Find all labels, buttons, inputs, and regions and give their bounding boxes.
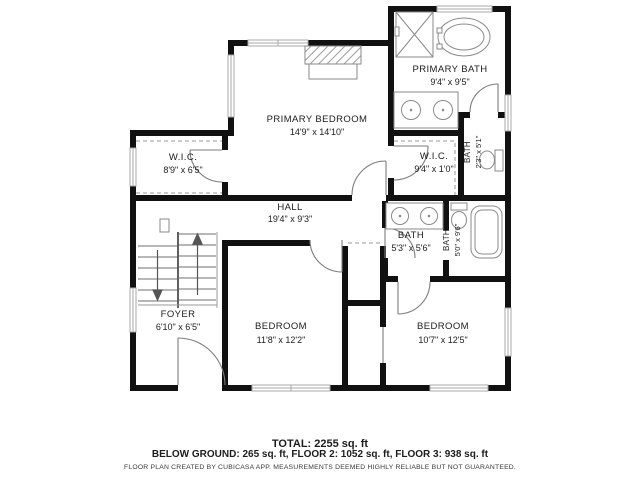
room-label-wic-left: W.I.C. 8'9" x 6'5" bbox=[163, 152, 202, 175]
floor-breakdown-text: BELOW GROUND: 265 sq. ft, FLOOR 2: 1052 … bbox=[152, 449, 489, 460]
room-label-wic-right: W.I.C. 9'4" x 1'0" bbox=[414, 151, 453, 174]
stairs bbox=[138, 219, 217, 308]
floor-plan-page: PRIMARY BATH 9'4" x 9'5" PRIMARY BEDROOM… bbox=[0, 0, 640, 480]
window bbox=[130, 288, 136, 332]
room-name: BATH bbox=[442, 229, 451, 251]
shower-icon bbox=[395, 12, 433, 57]
room-label-primary-bedroom: PRIMARY BEDROOM 14'9" x 14'10" bbox=[267, 114, 368, 137]
room-dims: 9'4" x 9'5" bbox=[430, 77, 469, 87]
room-name: BEDROOM bbox=[255, 321, 307, 332]
vanity-primary-bath bbox=[394, 92, 458, 128]
room-label-bedroom-right: BEDROOM 10'7" x 12'5" bbox=[417, 321, 469, 345]
floor-plan: PRIMARY BATH 9'4" x 9'5" PRIMARY BEDROOM… bbox=[0, 0, 640, 480]
door-front bbox=[178, 338, 225, 385]
wall bbox=[386, 195, 394, 201]
room-label-bath-small: BATH 2'3" x 5'1" bbox=[463, 135, 483, 168]
closet-door bbox=[380, 327, 386, 363]
bed-icon bbox=[305, 46, 361, 79]
window bbox=[430, 385, 488, 391]
vanity-middle-bath bbox=[386, 203, 443, 229]
wall bbox=[386, 276, 398, 282]
disclaimer-text: FLOOR PLAN CREATED BY CUBICASA APP. MEAS… bbox=[124, 464, 516, 471]
wall bbox=[443, 201, 449, 230]
room-dims: 5'0" x 9'6" bbox=[453, 223, 462, 256]
room-name: W.I.C. bbox=[420, 151, 448, 162]
footer: TOTAL: 2255 sq. ft BELOW GROUND: 265 sq.… bbox=[124, 438, 516, 471]
room-dims: 10'7" x 12'5" bbox=[418, 335, 467, 345]
wall bbox=[498, 112, 505, 118]
wall bbox=[342, 300, 386, 306]
room-label-foyer: FOYER 6'10" x 6'5" bbox=[156, 309, 200, 332]
room-name: FOYER bbox=[161, 309, 196, 320]
room-name: PRIMARY BATH bbox=[412, 64, 487, 75]
room-name: BEDROOM bbox=[417, 321, 469, 332]
wall bbox=[380, 246, 386, 390]
wall bbox=[342, 246, 348, 390]
wall bbox=[130, 195, 352, 201]
wall bbox=[394, 195, 505, 201]
room-label-bedroom-left: BEDROOM 11'8" x 12'2" bbox=[255, 321, 307, 345]
wall bbox=[130, 385, 178, 391]
newel-post bbox=[160, 219, 169, 232]
window bbox=[248, 40, 308, 46]
toilet-icon bbox=[480, 150, 504, 171]
wall bbox=[130, 130, 228, 136]
room-name: HALL bbox=[277, 202, 302, 213]
room-label-bath-middle: BATH 5'3" x 5'6" bbox=[391, 230, 430, 253]
door-primary-bedroom bbox=[352, 161, 386, 195]
bathtub-icon bbox=[471, 206, 502, 258]
room-dims: 11'8" x 12'2" bbox=[257, 335, 306, 345]
wall bbox=[222, 240, 228, 391]
room-label-hall: HALL 19'4" x 9'3" bbox=[268, 202, 312, 224]
room-name: BATH bbox=[463, 141, 472, 163]
room-dims: 6'10" x 6'5" bbox=[156, 322, 200, 332]
window bbox=[228, 55, 234, 117]
window bbox=[437, 6, 492, 12]
wall bbox=[462, 112, 470, 118]
room-dims: 5'3" x 5'6" bbox=[391, 243, 430, 253]
bathtub-icon bbox=[437, 18, 490, 56]
room-dims: 2'3" x 5'1" bbox=[474, 135, 483, 168]
window bbox=[130, 148, 136, 186]
room-dims: 19'4" x 9'3" bbox=[268, 214, 312, 224]
wall bbox=[228, 240, 310, 246]
room-dims: 14'9" x 14'10" bbox=[290, 127, 344, 137]
door-bedroom-right bbox=[398, 282, 430, 314]
wall bbox=[443, 260, 449, 276]
window bbox=[505, 308, 511, 356]
wall bbox=[430, 276, 505, 282]
room-dims: 8'9" x 6'5" bbox=[163, 165, 202, 175]
room-name: BATH bbox=[398, 230, 424, 241]
door-small-bath bbox=[470, 84, 498, 112]
wall bbox=[388, 6, 394, 46]
window bbox=[252, 385, 330, 391]
room-name: W.I.C. bbox=[169, 152, 197, 163]
wall bbox=[222, 136, 228, 150]
door-bedroom-left bbox=[310, 240, 342, 272]
stairs-up-arrow bbox=[193, 234, 202, 295]
room-label-primary-bath: PRIMARY BATH 9'4" x 9'5" bbox=[412, 64, 487, 87]
wall bbox=[388, 130, 462, 136]
room-dims: 9'4" x 1'0" bbox=[414, 164, 453, 174]
room-name: PRIMARY BEDROOM bbox=[267, 114, 368, 125]
window bbox=[505, 95, 511, 131]
